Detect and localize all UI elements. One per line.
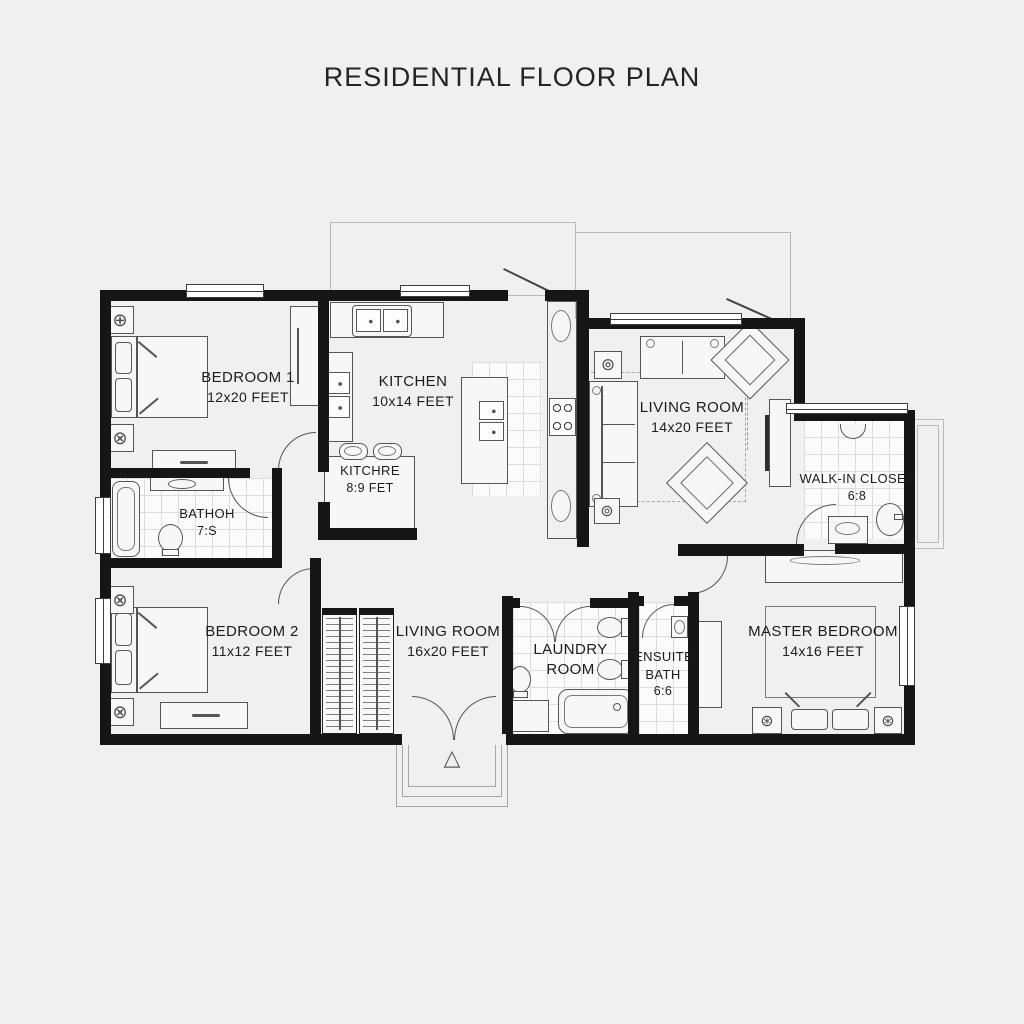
- kitchen-stool-seat: [378, 446, 396, 456]
- room-size: 7:S: [152, 523, 262, 540]
- wall-laundry-top-b: [590, 598, 628, 608]
- wall-bottom-right: [506, 734, 915, 745]
- room-name: BATHOH: [152, 505, 262, 523]
- room-size: 12x20 FEET: [158, 388, 338, 407]
- room-label-kitchen: KITCHEN 10x14 FEET: [330, 372, 496, 411]
- wall-bathroom-top: [100, 468, 250, 478]
- living-armchair: [678, 454, 736, 512]
- wall-laundry-top-a: [502, 598, 520, 608]
- wall-right-outer: [904, 410, 915, 745]
- laundry-bathtub-inner: [564, 695, 628, 728]
- kitchen-sink-basin: [383, 309, 408, 332]
- room-name: MASTER BEDROOM: [728, 622, 918, 642]
- room-label-laundry: LAUNDRY ROOM: [518, 640, 623, 681]
- bedroom1-pillow: [115, 342, 132, 374]
- bathroom-sink: [168, 479, 196, 489]
- closet-vanity-sink: [835, 522, 860, 535]
- room-size: 6:8: [796, 488, 918, 505]
- laundry-bathtub-drain: [613, 703, 621, 711]
- room-name: WALK-IN CLOSET: [796, 470, 918, 488]
- room-label-living-upper: LIVING ROOM 14x20 FEET: [602, 398, 782, 437]
- laundry-toilet-tank: [513, 691, 528, 698]
- deck-outline-right: [575, 232, 791, 319]
- master-dresser-detail: [790, 556, 860, 565]
- entry-door-arc-right: [454, 696, 496, 740]
- wall-laundry-left: [502, 596, 513, 734]
- room-label-living-lower: LIVING ROOM 16x20 FEET: [358, 622, 538, 661]
- room-name: LIVING ROOM: [602, 398, 782, 418]
- counter-appliance-oval: [551, 490, 571, 522]
- room-name: ROOM: [518, 660, 623, 680]
- bedroom2-bed-fold-line: [136, 608, 138, 692]
- room-name: KITCHRE: [326, 462, 414, 480]
- wall-ensuite-top-a: [628, 596, 644, 606]
- hall-closet-cap: [322, 608, 357, 615]
- room-label-bedroom2: BEDROOM 2 11x12 FEET: [162, 622, 342, 661]
- bathroom-toilet-tank: [162, 549, 179, 556]
- room-label-walk-in-closet: WALK-IN CLOSET 6:8: [796, 470, 918, 504]
- room-size: 11x12 FEET: [162, 642, 342, 661]
- door-arc-master: [690, 556, 728, 594]
- room-name: BEDROOM 1: [158, 368, 338, 388]
- sofa-arm-detail: [592, 386, 601, 395]
- sofa-arm-detail: [710, 339, 719, 348]
- wall-bottom-left: [100, 734, 402, 745]
- room-name: BATH: [634, 666, 692, 684]
- room-name: LAUNDRY: [518, 640, 623, 660]
- wall-bedroom2-top: [100, 558, 282, 568]
- hall-closet-cap: [359, 608, 394, 615]
- wall-kitchen-living-divider: [577, 301, 589, 547]
- ensuite-sink-basin: [674, 620, 685, 634]
- entry-arrow-icon: △: [437, 746, 467, 772]
- floor-lamp-icon: ⊚: [594, 498, 620, 524]
- room-name: BEDROOM 2: [162, 622, 342, 642]
- door-arc-bedroom1: [278, 432, 316, 470]
- kitchen-sink-basin: [356, 309, 381, 332]
- window-bedroom1-top: [186, 284, 264, 298]
- door-arc-bedroom2: [278, 568, 314, 604]
- wall-kitchen-nook-bottom: [318, 528, 417, 540]
- room-label-ensuite: ENSUITE BATH 6:6: [634, 648, 692, 700]
- sofa-cushion-line: [601, 462, 635, 463]
- stove-cooktop: [549, 398, 576, 436]
- laundry-toilet-bowl: [597, 617, 623, 638]
- closet-sink-tap: [894, 514, 903, 520]
- bedroom1-pillow: [115, 378, 132, 412]
- room-label-bathroom: BATHOH 7:S: [152, 505, 262, 539]
- table-lamp-icon: ⊛: [752, 707, 782, 734]
- kitchen-stool-seat: [344, 446, 362, 456]
- page-title: RESIDENTIAL FLOOR PLAN: [0, 62, 1024, 93]
- wall-closet-bottom: [835, 544, 915, 554]
- wall-bathroom-right: [272, 468, 282, 568]
- wall-top-kitchen-right: [545, 290, 589, 301]
- room-name: KITCHEN: [330, 372, 496, 392]
- window-bathroom-left: [95, 497, 111, 554]
- counter-appliance-oval: [551, 310, 571, 342]
- room-size: 14x20 FEET: [602, 418, 782, 437]
- table-lamp-icon: ⊛: [874, 707, 902, 734]
- room-size: 16x20 FEET: [358, 642, 538, 661]
- window-kitchen-top: [400, 285, 470, 297]
- wall-living-bottom: [678, 544, 804, 556]
- sofa-cushion-line: [682, 341, 683, 374]
- bedroom2-pillow: [115, 613, 132, 646]
- room-label-bedroom1: BEDROOM 1 12x20 FEET: [158, 368, 338, 407]
- room-label-kitchen-nook: KITCHRE 8:9 FET: [326, 462, 414, 496]
- entry-door-arc-left: [412, 696, 454, 740]
- bedroom1-bed-fold-line: [136, 337, 138, 417]
- window-living-top: [610, 313, 742, 325]
- bathroom-tub-inner: [117, 487, 135, 551]
- room-label-master: MASTER BEDROOM 14x16 FEET: [728, 622, 918, 661]
- side-extension-inner: [917, 425, 939, 543]
- room-size: 10x14 FEET: [330, 392, 496, 411]
- wall-nook-stub: [318, 502, 330, 530]
- living-armchair: [722, 332, 778, 388]
- room-size: 14x16 FEET: [728, 642, 918, 661]
- room-size: 8:9 FET: [326, 480, 414, 497]
- window-closet-top: [786, 403, 908, 414]
- floor-lamp-icon: ⊚: [594, 351, 622, 379]
- bedroom1-dresser-handle: [180, 461, 208, 464]
- master-pillow: [791, 709, 828, 730]
- room-size: 6:6: [634, 683, 692, 700]
- window-bedroom2-left: [95, 598, 111, 664]
- floor-plan-page: { "title": "RESIDENTIAL FLOOR PLAN", "ro…: [0, 0, 1024, 1024]
- sofa-arm-detail: [646, 339, 655, 348]
- room-name: LIVING ROOM: [358, 622, 538, 642]
- master-pillow: [832, 709, 869, 730]
- room-name: ENSUITE: [634, 648, 692, 666]
- island-sink-basin: [479, 422, 504, 441]
- bedroom2-dresser-handle: [192, 714, 220, 717]
- bedroom2-pillow: [115, 650, 132, 685]
